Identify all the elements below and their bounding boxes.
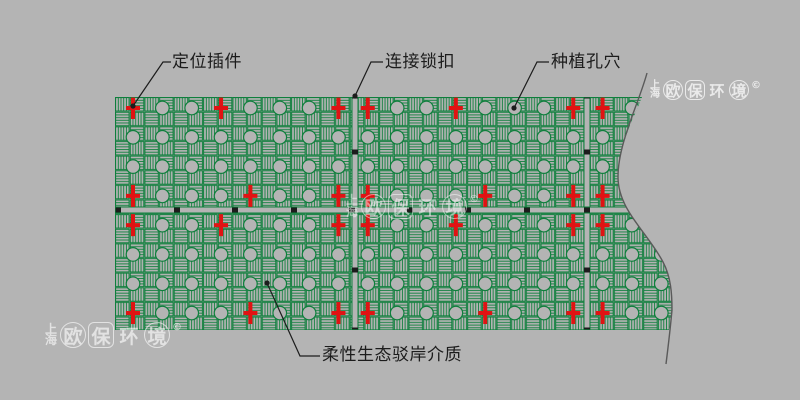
planting-hole: [273, 189, 287, 203]
planting-hole: [655, 306, 669, 320]
connection-lock-marker: [232, 208, 238, 213]
planting-hole: [478, 277, 492, 291]
planting-hole: [537, 277, 551, 291]
planting-hole: [273, 306, 287, 320]
planting-hole: [537, 130, 551, 144]
planting-hole: [625, 218, 639, 232]
planting-hole: [156, 218, 170, 232]
connection-lock-marker: [584, 150, 590, 155]
watermark-brand-char: 欧: [663, 80, 683, 100]
planting-hole: [537, 248, 551, 262]
planting-hole: [332, 160, 346, 174]
planting-hole: [420, 277, 434, 291]
planting-hole: [273, 218, 287, 232]
planting-hole: [596, 130, 610, 144]
planting-hole: [156, 160, 170, 174]
watermark-brand-char: 境: [729, 80, 749, 100]
planting-hole: [508, 277, 522, 291]
planting-hole: [214, 130, 228, 144]
planting-hole: [244, 248, 258, 262]
planting-hole: [302, 248, 316, 262]
watermark-city: 上海: [346, 195, 358, 218]
connection-lock-marker: [352, 150, 358, 155]
watermark-brand-char: 境: [144, 322, 170, 348]
planting-hole: [625, 277, 639, 291]
planting-hole: [655, 189, 669, 203]
watermark-brand-char: 境: [442, 194, 467, 219]
planting-hole: [537, 218, 551, 232]
planting-hole: [361, 248, 375, 262]
planting-hole: [420, 160, 434, 174]
planting-hole: [126, 160, 140, 174]
planting-hole: [537, 306, 551, 320]
leader-dot: [352, 93, 357, 98]
planting-hole: [508, 130, 522, 144]
planting-hole: [156, 101, 170, 115]
planting-hole: [273, 248, 287, 262]
connection-lock-marker: [291, 208, 297, 213]
planting-hole: [420, 130, 434, 144]
planting-hole: [185, 248, 199, 262]
planting-hole: [449, 130, 463, 144]
planting-hole: [625, 189, 639, 203]
watermark-city: 上海: [650, 81, 660, 100]
watermark-brand-char: 环: [707, 80, 727, 100]
planting-hole: [156, 306, 170, 320]
planting-hole: [244, 160, 258, 174]
copyright-mark: ©: [172, 322, 182, 333]
planting-hole: [566, 160, 580, 174]
planting-hole: [390, 218, 404, 232]
planting-hole: [273, 101, 287, 115]
planting-hole: [273, 130, 287, 144]
planting-hole: [508, 218, 522, 232]
watermark-city: 上海: [45, 324, 57, 347]
watermark-brand-char: 保: [88, 322, 114, 348]
watermark-brand-char: 环: [415, 194, 440, 219]
planting-hole: [361, 277, 375, 291]
planting-hole: [420, 218, 434, 232]
planting-hole: [185, 160, 199, 174]
planting-hole: [449, 306, 463, 320]
planting-hole: [302, 130, 316, 144]
callout-planting-hole: 种植孔穴: [551, 53, 621, 73]
leader-line: [355, 62, 383, 96]
planting-hole: [420, 306, 434, 320]
planting-hole: [508, 189, 522, 203]
planting-hole: [302, 160, 316, 174]
planting-hole: [302, 277, 316, 291]
planting-hole: [420, 248, 434, 262]
planting-hole: [185, 189, 199, 203]
planting-hole: [361, 160, 375, 174]
planting-hole: [537, 189, 551, 203]
planting-hole: [537, 160, 551, 174]
watermark-logo-bottom-left: 上海 欧 保 环 境 ©: [45, 322, 182, 348]
connection-lock-marker: [584, 268, 590, 273]
planting-hole: [185, 306, 199, 320]
planting-hole: [655, 277, 669, 291]
watermark-brand-char: 环: [116, 322, 142, 348]
planting-hole: [420, 101, 434, 115]
planting-hole: [508, 160, 522, 174]
planting-hole: [390, 101, 404, 115]
planting-hole: [390, 248, 404, 262]
planting-hole: [214, 277, 228, 291]
planting-hole: [449, 160, 463, 174]
watermark-brand-char: 欧: [361, 194, 386, 219]
planting-hole: [244, 130, 258, 144]
connection-lock-marker: [584, 208, 590, 213]
planting-hole: [390, 130, 404, 144]
planting-hole: [478, 160, 492, 174]
planting-hole: [537, 101, 551, 115]
planting-hole: [185, 101, 199, 115]
planting-hole: [244, 101, 258, 115]
connection-lock-marker: [174, 208, 180, 213]
planting-hole: [478, 248, 492, 262]
planting-hole: [214, 160, 228, 174]
planting-hole: [185, 277, 199, 291]
planting-hole: [244, 277, 258, 291]
planting-hole: [126, 130, 140, 144]
planting-hole: [655, 130, 669, 144]
callout-revetment-medium: 柔性生态驳岸介质: [322, 346, 462, 366]
planting-hole: [302, 218, 316, 232]
planting-hole: [478, 101, 492, 115]
planting-hole: [156, 189, 170, 203]
copyright-mark: ©: [751, 80, 761, 91]
planting-hole: [508, 248, 522, 262]
planting-hole: [449, 277, 463, 291]
watermark-logo-top-right: 上海 欧 保 环 境 ©: [650, 80, 761, 100]
planting-hole: [273, 160, 287, 174]
planting-hole: [214, 306, 228, 320]
planting-hole: [156, 248, 170, 262]
planting-hole: [449, 248, 463, 262]
planting-hole: [566, 277, 580, 291]
planting-hole: [390, 306, 404, 320]
planting-hole: [566, 248, 580, 262]
planting-hole: [625, 160, 639, 174]
connection-lock-marker: [524, 208, 530, 213]
planting-hole: [625, 248, 639, 262]
planting-hole: [478, 130, 492, 144]
planting-hole: [508, 306, 522, 320]
leader-dot: [130, 103, 135, 108]
watermark-logo-center: 上海 欧 保 环 境 ©: [346, 194, 479, 219]
connection-lock-marker: [115, 208, 121, 213]
planting-hole: [302, 189, 316, 203]
diagram-canvas: 定位插件 连接锁扣 种植孔穴 柔性生态驳岸介质 上海 欧 保 环 境 © 上海 …: [0, 0, 800, 400]
planting-hole: [332, 277, 346, 291]
planting-hole: [390, 160, 404, 174]
planting-hole: [273, 277, 287, 291]
planting-hole: [655, 218, 669, 232]
planting-hole: [655, 101, 669, 115]
planting-hole: [156, 130, 170, 144]
planting-hole: [126, 277, 140, 291]
copyright-mark: ©: [469, 194, 479, 205]
planting-hole: [185, 218, 199, 232]
planting-hole: [596, 277, 610, 291]
planting-hole: [332, 248, 346, 262]
planting-hole: [156, 277, 170, 291]
planting-hole: [302, 101, 316, 115]
callout-connection-lock: 连接锁扣: [385, 53, 455, 73]
connection-lock-marker: [352, 268, 358, 273]
connection-lock-marker: [584, 94, 590, 99]
planting-hole: [302, 306, 316, 320]
planting-hole: [655, 160, 669, 174]
planting-hole: [361, 130, 375, 144]
watermark-brand-char: 保: [685, 80, 705, 100]
planting-hole: [244, 218, 258, 232]
planting-hole: [566, 130, 580, 144]
leader-dot: [511, 105, 516, 110]
leader-dot: [264, 280, 269, 285]
planting-hole: [596, 160, 610, 174]
planting-hole: [625, 306, 639, 320]
planting-hole: [390, 277, 404, 291]
planting-hole: [596, 248, 610, 262]
callout-positioning-plug: 定位插件: [172, 53, 242, 73]
planting-hole: [332, 130, 346, 144]
watermark-brand-char: 欧: [60, 322, 86, 348]
planting-hole: [185, 130, 199, 144]
watermark-brand-char: 保: [388, 194, 413, 219]
planting-hole: [478, 218, 492, 232]
planting-hole: [126, 248, 140, 262]
planting-hole: [214, 189, 228, 203]
planting-hole: [214, 248, 228, 262]
